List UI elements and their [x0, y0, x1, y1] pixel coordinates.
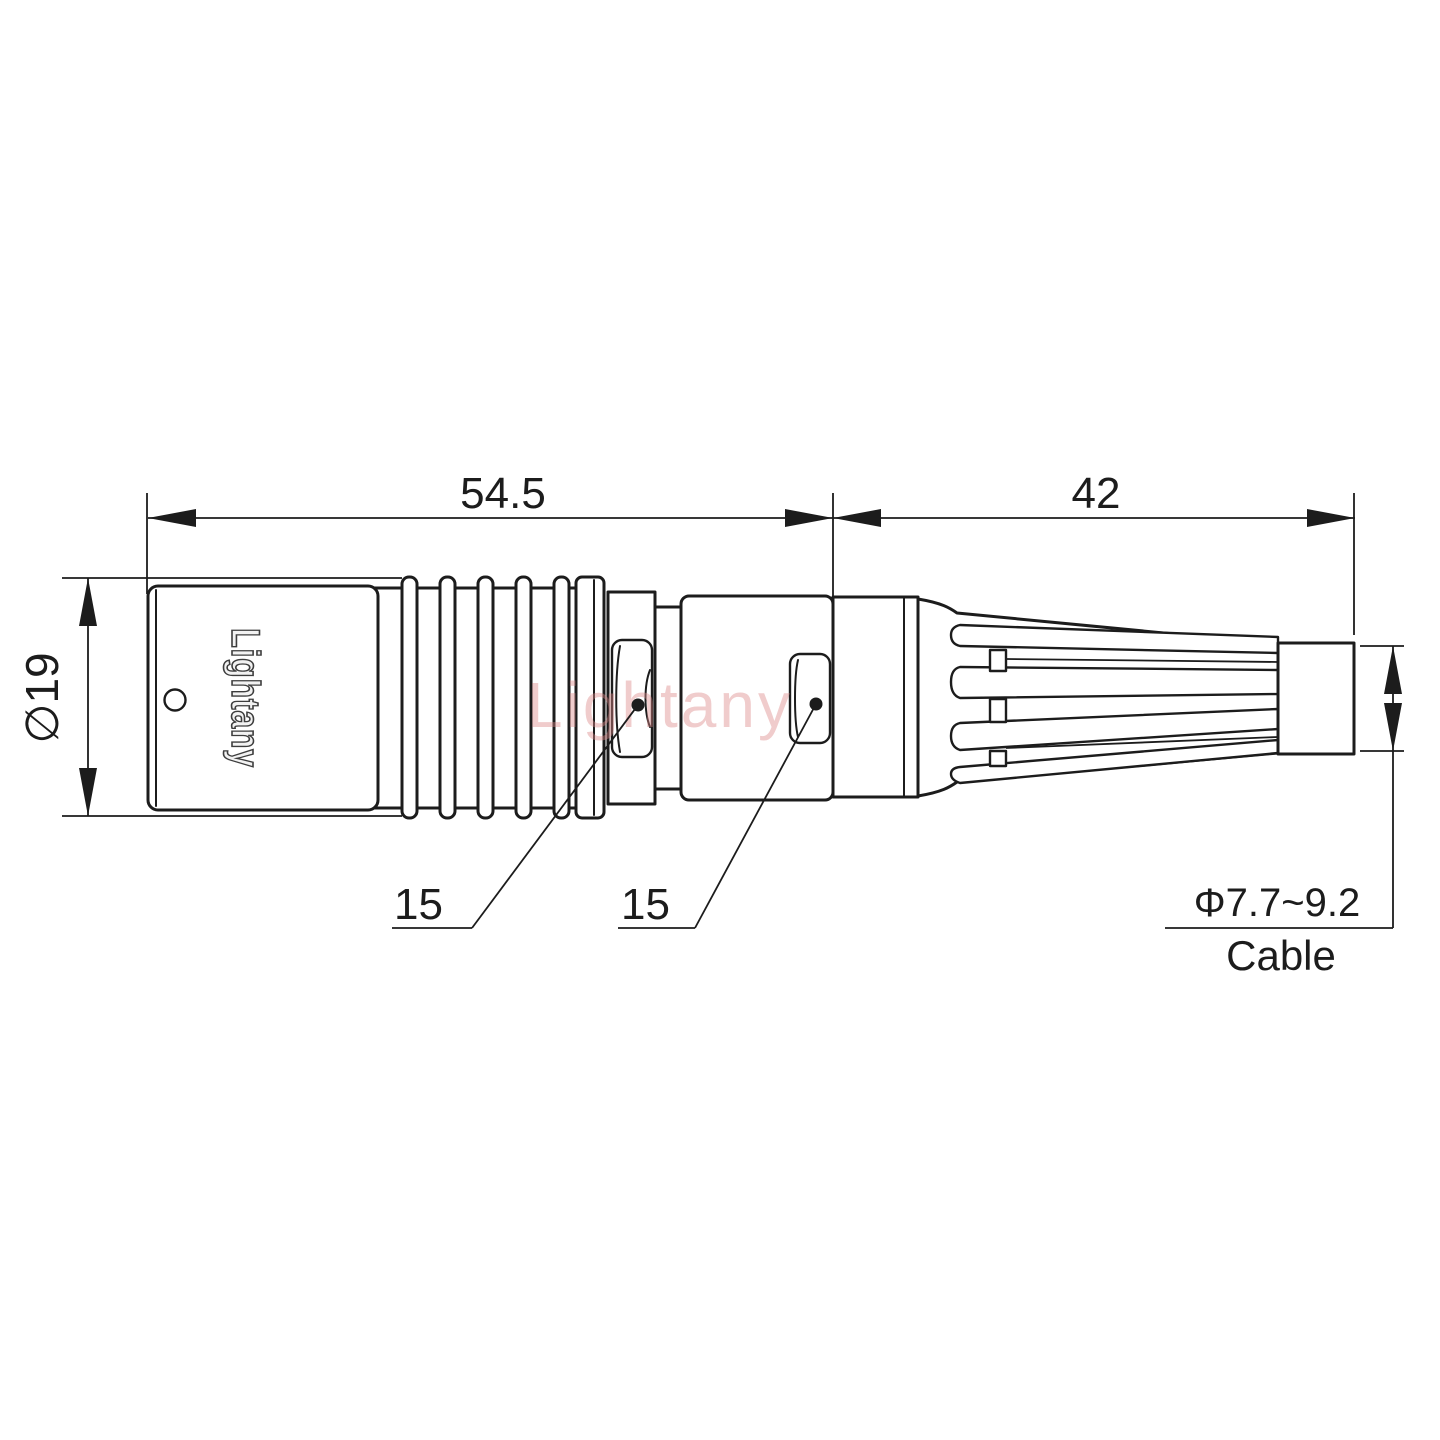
technical-drawing-canvas: Lightany [0, 0, 1440, 1440]
cable-label: Cable [1226, 932, 1336, 979]
arrowhead-up [1384, 646, 1402, 694]
rear-flat-value: 15 [621, 880, 670, 929]
rear-length-value: 42 [1072, 469, 1121, 518]
front-length-value: 54.5 [460, 469, 546, 518]
connector-technical-drawing: Lightany [0, 0, 1440, 1440]
pilot-hole [165, 690, 186, 711]
arrowhead-left [148, 509, 196, 527]
cable-diameter-range: Φ7.7~9.2 [1194, 881, 1360, 925]
body-diameter-value: ∅19 [16, 652, 68, 743]
arrowhead-left [833, 509, 881, 527]
fin-web [990, 650, 1006, 671]
fin-web [990, 751, 1006, 766]
clamp-body [833, 597, 918, 797]
arrowhead-down [1384, 703, 1402, 751]
grip-rib [402, 577, 417, 818]
strain-relief [918, 599, 1278, 796]
watermark-text: Lightany [527, 669, 793, 741]
arrowhead-right [785, 509, 833, 527]
cable-clamp [833, 597, 918, 797]
arrowhead-down [79, 768, 97, 816]
grip-rib [440, 577, 455, 818]
arrowhead-up [79, 578, 97, 626]
body-marking-text: Lightany [223, 628, 268, 768]
cable-ferrule [1278, 643, 1354, 754]
fin-web [990, 699, 1006, 722]
front-flat-value: 15 [394, 880, 443, 929]
grip-rib [478, 577, 493, 818]
main-body: Lightany [148, 586, 378, 810]
arrowhead-right [1307, 509, 1355, 527]
